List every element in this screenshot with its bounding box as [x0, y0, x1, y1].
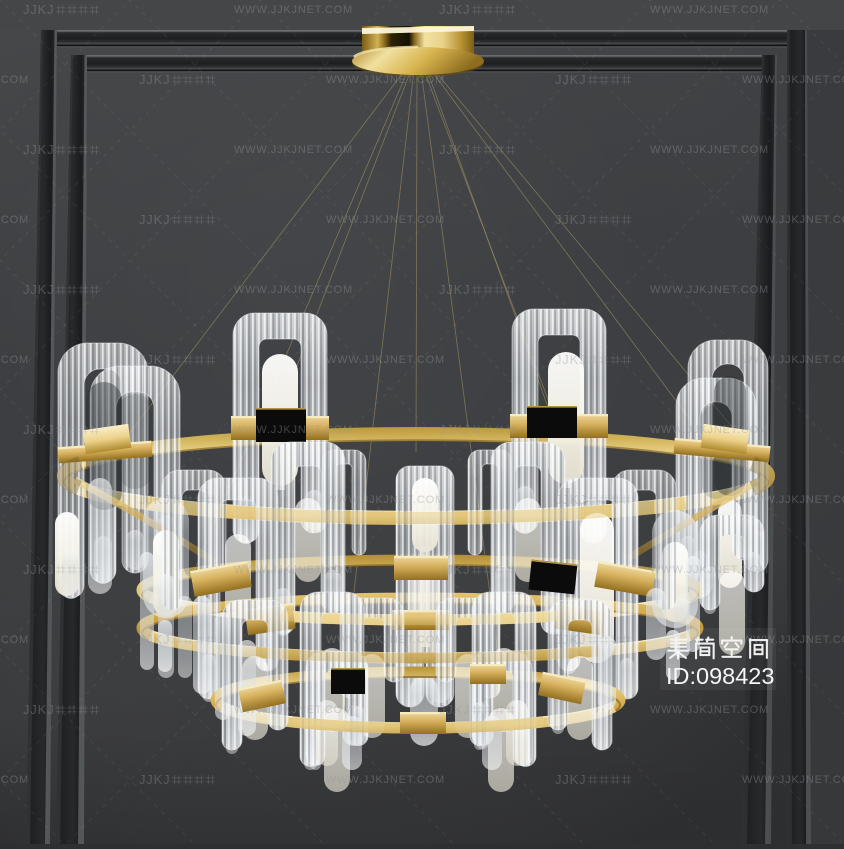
svg-text:WWW.JJKJNET.COM: WWW.JJKJNET.COM [234, 424, 353, 436]
svg-text:WWW.JJKJNET.COM: WWW.JJKJNET.COM [650, 424, 769, 436]
svg-text:JJKJ: JJKJ [555, 772, 586, 787]
svg-text:WWW.JJKJNET.COM: WWW.JJKJNET.COM [234, 144, 353, 156]
svg-text:JJKJ: JJKJ [555, 632, 586, 647]
svg-text:WWW.JJKJNET.COM: WWW.JJKJNET.COM [234, 704, 353, 716]
svg-text:WWW.JJKJNET.COM: WWW.JJKJNET.COM [742, 774, 844, 786]
svg-text:WWW.JJKJNET.COM: WWW.JJKJNET.COM [326, 354, 445, 366]
svg-text:WWW.JJKJNET.COM: WWW.JJKJNET.COM [326, 74, 445, 86]
svg-text:WWW.JJKJNET.COM: WWW.JJKJNET.COM [0, 634, 29, 646]
svg-text:JJKJ: JJKJ [139, 212, 170, 227]
svg-text:JJKJ: JJKJ [555, 352, 586, 367]
svg-text:WWW.JJKJNET.COM: WWW.JJKJNET.COM [0, 774, 29, 786]
svg-text:WWW.JJKJNET.COM: WWW.JJKJNET.COM [742, 74, 844, 86]
svg-text:JJKJ: JJKJ [23, 142, 54, 157]
svg-text:JJKJ: JJKJ [439, 422, 470, 437]
svg-text:JJKJ: JJKJ [23, 702, 54, 717]
svg-text:WWW.JJKJNET.COM: WWW.JJKJNET.COM [326, 494, 445, 506]
svg-text:WWW.JJKJNET.COM: WWW.JJKJNET.COM [234, 284, 353, 296]
svg-text:JJKJ: JJKJ [555, 492, 586, 507]
svg-text:JJKJ: JJKJ [439, 282, 470, 297]
svg-text:WWW.JJKJNET.COM: WWW.JJKJNET.COM [0, 214, 29, 226]
svg-text:WWW.JJKJNET.COM: WWW.JJKJNET.COM [234, 4, 353, 16]
svg-text:WWW.JJKJNET.COM: WWW.JJKJNET.COM [234, 564, 353, 576]
svg-text:JJKJ: JJKJ [23, 2, 54, 17]
svg-text:JJKJ: JJKJ [439, 2, 470, 17]
svg-text:JJKJ: JJKJ [439, 562, 470, 577]
svg-text:WWW.JJKJNET.COM: WWW.JJKJNET.COM [0, 74, 29, 86]
svg-text:JJKJ: JJKJ [139, 772, 170, 787]
svg-text:WWW.JJKJNET.COM: WWW.JJKJNET.COM [0, 494, 29, 506]
svg-text:JJKJ: JJKJ [439, 142, 470, 157]
svg-text:JJKJ: JJKJ [139, 352, 170, 367]
svg-text:JJKJ: JJKJ [139, 632, 170, 647]
svg-text:WWW.JJKJNET.COM: WWW.JJKJNET.COM [326, 634, 445, 646]
svg-text:WWW.JJKJNET.COM: WWW.JJKJNET.COM [326, 774, 445, 786]
svg-text:JJKJ: JJKJ [555, 212, 586, 227]
svg-text:WWW.JJKJNET.COM: WWW.JJKJNET.COM [650, 704, 769, 716]
svg-text:WWW.JJKJNET.COM: WWW.JJKJNET.COM [650, 144, 769, 156]
svg-text:JJKJ: JJKJ [23, 562, 54, 577]
svg-text:JJKJ: JJKJ [139, 492, 170, 507]
svg-text:JJKJ: JJKJ [439, 702, 470, 717]
svg-text:WWW.JJKJNET.COM: WWW.JJKJNET.COM [650, 4, 769, 16]
svg-text:JJKJ: JJKJ [555, 72, 586, 87]
svg-text:WWW.JJKJNET.COM: WWW.JJKJNET.COM [650, 284, 769, 296]
svg-text:JJKJ: JJKJ [23, 422, 54, 437]
svg-text:JJKJ: JJKJ [23, 282, 54, 297]
svg-text:WWW.JJKJNET.COM: WWW.JJKJNET.COM [742, 494, 844, 506]
svg-text:JJKJ: JJKJ [139, 72, 170, 87]
svg-text:WWW.JJKJNET.COM: WWW.JJKJNET.COM [650, 564, 769, 576]
svg-text:WWW.JJKJNET.COM: WWW.JJKJNET.COM [742, 354, 844, 366]
svg-text:WWW.JJKJNET.COM: WWW.JJKJNET.COM [0, 354, 29, 366]
svg-text:ID:098423: ID:098423 [666, 663, 774, 689]
svg-text:WWW.JJKJNET.COM: WWW.JJKJNET.COM [742, 214, 844, 226]
svg-text:WWW.JJKJNET.COM: WWW.JJKJNET.COM [326, 214, 445, 226]
